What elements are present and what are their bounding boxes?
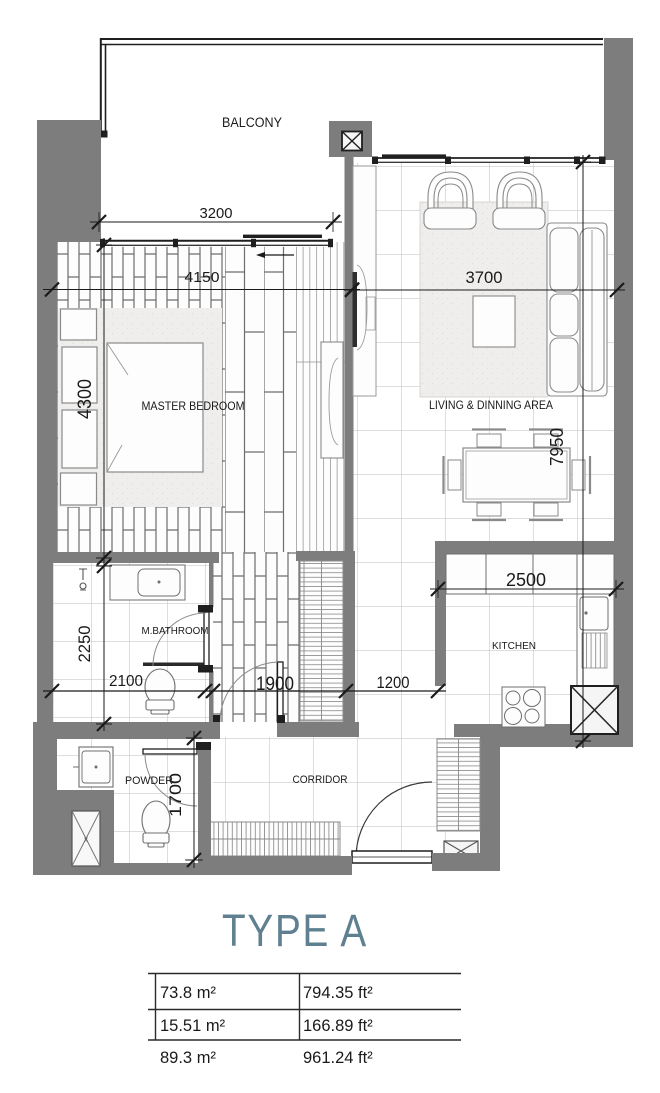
svg-text:BALCONY: BALCONY [222,115,282,130]
svg-text:2500: 2500 [506,569,546,590]
svg-text:166.89 ft²: 166.89 ft² [303,1017,373,1035]
svg-text:2250: 2250 [75,626,94,663]
svg-text:2100: 2100 [109,673,143,690]
svg-text:CORRIDOR: CORRIDOR [293,774,348,786]
svg-text:MASTER BEDROOM: MASTER BEDROOM [142,401,245,413]
svg-text:1200: 1200 [377,674,410,692]
svg-text:7950: 7950 [547,428,567,466]
svg-text:M.BATHROOM: M.BATHROOM [142,626,209,637]
svg-text:4300: 4300 [75,379,96,419]
svg-text:LIVING & DINNING AREA: LIVING & DINNING AREA [429,400,553,412]
svg-text:4150: 4150 [185,269,220,286]
svg-text:3200: 3200 [200,205,233,222]
svg-text:1900: 1900 [256,673,294,695]
svg-text:15.51 m²: 15.51 m² [160,1017,226,1035]
svg-text:1700: 1700 [166,773,185,817]
svg-text:73.8 m²: 73.8 m² [160,984,216,1002]
svg-text:KITCHEN: KITCHEN [492,640,536,652]
svg-text:794.35 ft²: 794.35 ft² [303,984,373,1002]
svg-text:TYPE A: TYPE A [222,905,368,956]
svg-text:3700: 3700 [466,269,503,287]
svg-text:961.24 ft²: 961.24 ft² [303,1049,373,1067]
svg-text:89.3 m²: 89.3 m² [160,1049,216,1067]
svg-text:x: x [84,835,88,844]
